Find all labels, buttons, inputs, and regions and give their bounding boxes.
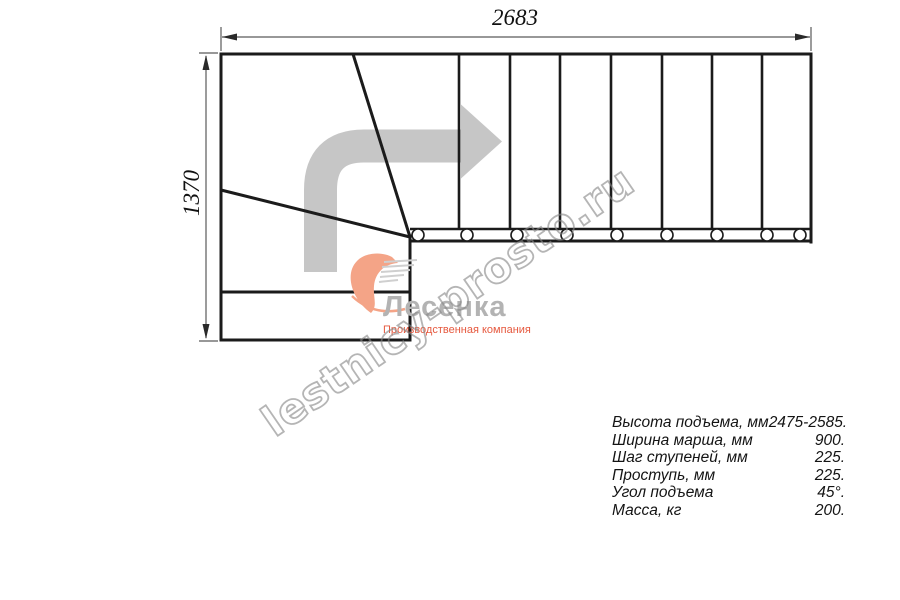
- spec-row-height: Высота подъема, мм 2475-2585.: [612, 414, 845, 432]
- height-dimension-label: 1370: [179, 147, 205, 239]
- spec-row-mass: Масса, кг 200.: [612, 502, 845, 520]
- spec-row-step-pitch: Шаг ступеней, мм 225.: [612, 449, 845, 467]
- spec-value: 200.: [815, 502, 845, 520]
- spec-table: Высота подъема, мм 2475-2585. Ширина мар…: [612, 414, 845, 520]
- tread-lines: [459, 54, 762, 229]
- spec-row-angle: Угол подъема 45°.: [612, 484, 845, 502]
- logo-tagline: Производственная компания: [383, 324, 553, 336]
- spec-label: Проступь, мм: [612, 467, 715, 485]
- spec-row-tread: Проступь, мм 225.: [612, 467, 845, 485]
- spec-value: 225.: [815, 467, 845, 485]
- spec-label: Шаг ступеней, мм: [612, 449, 748, 467]
- baluster-markers: [412, 229, 806, 241]
- spec-label: Ширина марша, мм: [612, 432, 753, 450]
- spec-label: Масса, кг: [612, 502, 681, 520]
- spec-value: 2475-2585.: [769, 414, 847, 432]
- spec-label: Высота подъема, мм: [612, 414, 769, 432]
- spec-row-flight-width: Ширина марша, мм 900.: [612, 432, 845, 450]
- width-dimension-label: 2683: [455, 5, 575, 31]
- logo-company-name: Лесенка: [383, 291, 553, 324]
- staircase-drawing-page: 2683 1370 Лесенка Производственная компа…: [0, 0, 900, 600]
- spec-value: 900.: [815, 432, 845, 450]
- spec-value: 225.: [815, 449, 845, 467]
- spec-value: 45°.: [817, 484, 845, 502]
- spec-label: Угол подъема: [612, 484, 713, 502]
